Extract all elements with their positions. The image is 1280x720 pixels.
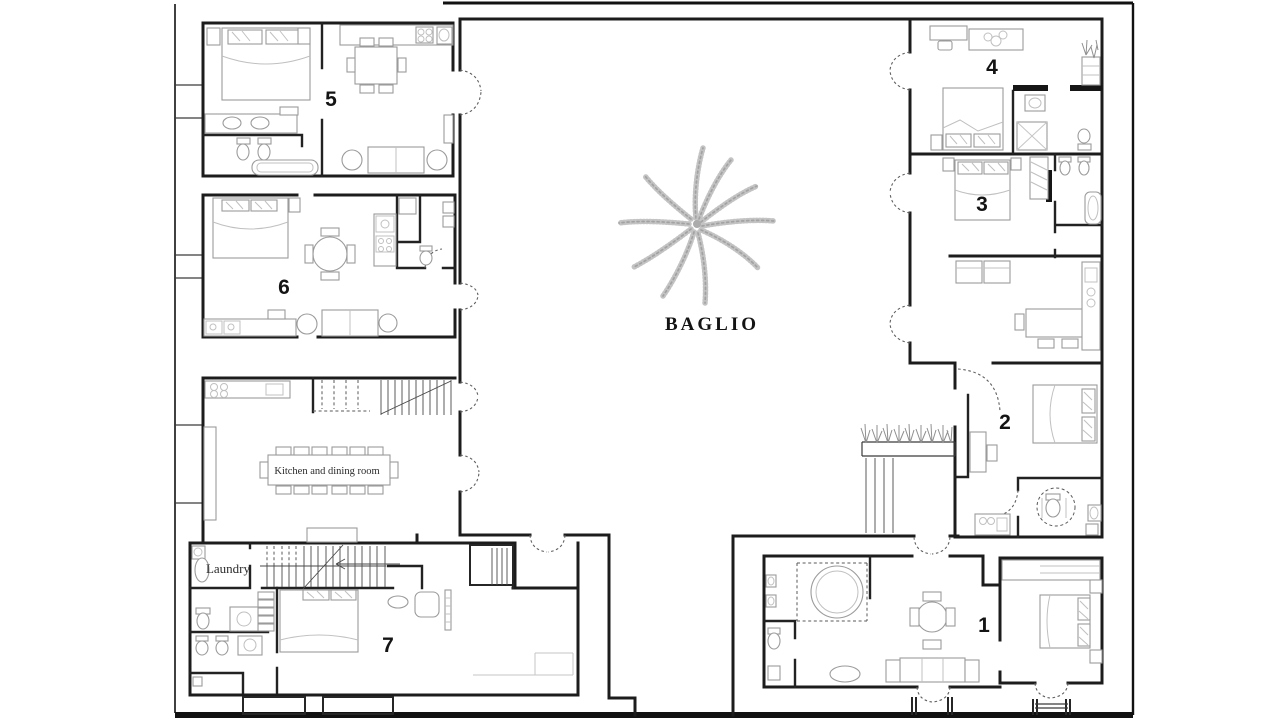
apartment-6-label: 6 [278,276,290,299]
patio-outline [473,653,573,675]
apartment-5-label: 5 [325,88,337,111]
apartment-1-furniture [766,563,979,682]
apartment-2-furniture [970,385,1101,535]
apartment-4-label: 4 [986,56,998,79]
porch-pillars [243,697,393,714]
courtyard-planter [861,424,955,533]
courtyard-ramp [866,458,893,533]
floor-plan-drawing: BAGLIO [0,0,1280,720]
floor-plan-page: BAGLIO [0,0,1280,720]
palm-tree-sketch [619,148,774,303]
bottom-right-bedroom-furniture [1002,560,1102,663]
apartment-3-furniture [943,157,1101,350]
kitchen-label: Kitchen and dining room [274,466,379,477]
laundry-label: Laundry [206,561,251,576]
apartment-3-label: 3 [976,193,988,216]
courtyard-label: BAGLIO [665,314,759,335]
apartment-2-label: 2 [999,411,1011,434]
kitchen-furniture [204,381,398,542]
apartment-7-furniture [193,590,451,686]
staircase-upper [313,380,451,415]
apartment-1-label: 1 [978,614,990,637]
apartment-7-label: 7 [382,634,394,657]
